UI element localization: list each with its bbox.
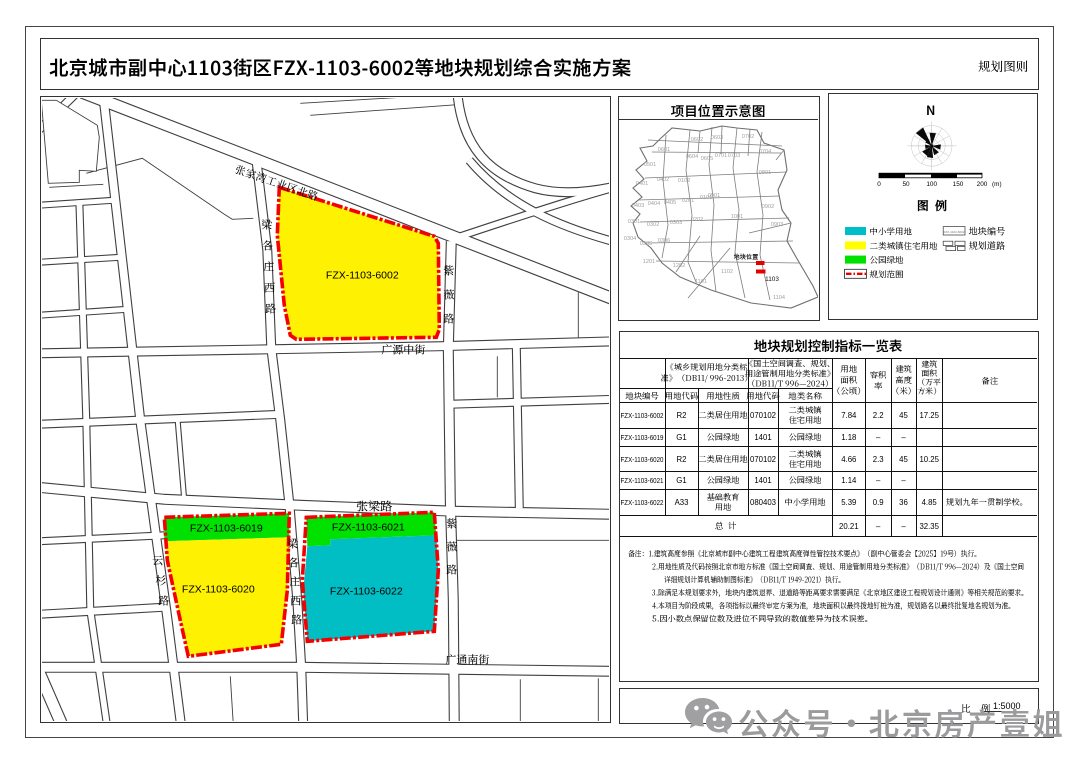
svg-text:率: 率 [874,380,883,392]
svg-text:地块编号: 地块编号 [969,224,1006,238]
svg-text:0801: 0801 [759,170,771,176]
svg-text:FZX-1103-6019: FZX-1103-6019 [621,433,664,442]
svg-text:（DB11/T 996—2024）: （DB11/T 996—2024） [747,379,833,390]
svg-text:路: 路 [446,561,457,577]
svg-text:FZX-1103-6021: FZX-1103-6021 [621,476,664,485]
svg-text:二类居住用地: 二类居住用地 [698,454,747,465]
svg-text:150: 150 [953,181,964,188]
svg-text:FZX-1103-6020: FZX-1103-6020 [182,583,255,595]
svg-text:100: 100 [926,181,937,188]
svg-text:0302: 0302 [647,222,659,228]
svg-text:路: 路 [158,592,169,608]
svg-text:0702: 0702 [742,134,754,140]
svg-text:0: 0 [877,181,881,188]
svg-text:2.2: 2.2 [873,411,884,420]
svg-text:FZX-1103-6002: FZX-1103-6002 [944,230,965,234]
svg-text:庄: 庄 [289,573,300,589]
svg-text:0501: 0501 [644,162,656,168]
svg-text:薇: 薇 [443,286,454,302]
svg-text:R2: R2 [677,411,687,420]
svg-text:0.9: 0.9 [873,498,884,507]
svg-text:用地代码: 用地代码 [746,390,780,402]
svg-text:–: – [876,476,881,485]
svg-text:0404: 0404 [648,201,660,207]
svg-text:20.21: 20.21 [839,522,859,531]
svg-text:5.因小数点保留位数及进位不同导致的数值差异为技术误差。: 5.因小数点保留位数及进位不同导致的数值差异为技术误差。 [652,614,873,625]
svg-text:公园绿地: 公园绿地 [707,432,740,443]
svg-text:公园绿地: 公园绿地 [789,432,822,443]
svg-text:梁: 梁 [287,535,298,551]
svg-text:0903: 0903 [771,222,783,228]
svg-text:2.3: 2.3 [873,455,884,464]
svg-text:公园绿地: 公园绿地 [789,475,822,486]
svg-text:FZX-1103-6019: FZX-1103-6019 [190,522,263,534]
svg-text:3.除满足本规划要求外，地块内建筑退界、退道路等距离要求需要: 3.除满足本规划要求外，地块内建筑退界、退道路等距离要求需要满足《北京地区建设工… [652,588,1028,599]
svg-text:张梁路: 张梁路 [356,497,392,514]
svg-text:0902: 0902 [762,204,774,210]
svg-text:地块位置: 地块位置 [734,252,759,261]
svg-text:0301: 0301 [628,219,640,225]
svg-text:（米）: （米） [891,385,916,397]
svg-text:–: – [876,433,881,442]
svg-text:（公顷）: （公顷） [832,385,866,397]
svg-text:紫: 紫 [446,515,457,531]
svg-text:西: 西 [290,592,301,608]
svg-text:36: 36 [899,498,908,507]
svg-text:R2: R2 [677,455,687,464]
svg-text:45: 45 [899,411,908,420]
svg-text:1104: 1104 [773,295,785,301]
svg-text:0403: 0403 [632,203,644,209]
svg-text:梁: 梁 [261,216,272,232]
svg-text:路: 路 [265,300,276,316]
svg-text:路: 路 [291,611,302,627]
svg-text:–: – [901,522,906,531]
svg-text:0401: 0401 [636,181,648,187]
svg-text:用地代码: 用地代码 [665,390,699,402]
svg-text:公园绿地: 公园绿地 [870,254,905,266]
svg-text:0306: 0306 [658,238,670,244]
svg-text:1.14: 1.14 [841,476,857,485]
svg-text:中小学用地: 中小学用地 [870,226,913,238]
svg-text:地块规划控制指标一览表: 地块规划控制指标一览表 [754,335,903,355]
svg-text:总 计: 总 计 [715,520,737,532]
svg-text:0201: 0201 [682,198,694,204]
svg-text:45: 45 [899,455,908,464]
svg-text:各: 各 [288,554,300,570]
svg-text:住宅用地: 住宅用地 [789,415,822,426]
svg-text:FZX-1103-6021: FZX-1103-6021 [332,521,405,533]
svg-text:0704: 0704 [759,149,771,155]
svg-text:17.25: 17.25 [919,411,939,420]
svg-text:规划范围: 规划范围 [869,268,905,280]
svg-text:G1: G1 [676,476,686,485]
svg-text:广源中街: 广源中街 [381,341,426,357]
svg-text:FZX-1103-6020: FZX-1103-6020 [621,455,664,464]
svg-text:地类名称: 地类名称 [788,390,822,402]
svg-text:地块编号: 地块编号 [625,390,659,402]
svg-text:准》（DB11/ 996-2013）: 准》（DB11/ 996-2013） [661,373,753,384]
svg-text:50: 50 [902,181,910,188]
svg-text:1201: 1201 [643,259,655,265]
svg-text:0202: 0202 [691,217,703,223]
svg-text:中小学用地: 中小学用地 [785,497,826,508]
svg-text:10.25: 10.25 [919,455,939,464]
svg-text:4.本项目为阶段成果，各项指标以最终审定方案为准，地块面积以: 4.本项目为阶段成果，各项指标以最终审定方案为准，地块面积以最终拨地钉桩为准，规… [652,601,1015,612]
svg-text:–: – [901,433,906,442]
svg-text:080403: 080403 [750,498,776,507]
svg-text:薇: 薇 [446,538,457,554]
svg-text:FZX-1103-6002: FZX-1103-6002 [621,411,664,420]
svg-text:32.35: 32.35 [919,522,939,531]
svg-text:备注：1.建筑高度参照《北京城市副中心建筑工程建筑高度弹性管: 备注：1.建筑高度参照《北京城市副中心建筑工程建筑高度弹性管控技术要点》（副中心… [628,549,981,560]
svg-text:图 例: 图 例 [917,197,947,214]
svg-text:0605: 0605 [701,156,713,162]
svg-text:0303: 0303 [670,220,682,226]
svg-text:1103: 1103 [765,276,779,283]
svg-text:070102: 070102 [750,455,776,464]
svg-text:1202: 1202 [673,263,685,269]
svg-text:070102: 070102 [750,411,776,420]
svg-text:0603: 0603 [711,135,723,141]
svg-text:杉: 杉 [155,572,166,588]
svg-text:FZX-1103-6022: FZX-1103-6022 [330,585,403,597]
svg-text:公园绿地: 公园绿地 [707,475,740,486]
svg-text:1401: 1401 [754,476,771,485]
svg-text:0602: 0602 [691,137,703,143]
svg-text:1102: 1102 [721,269,733,275]
svg-text:0703: 0703 [728,153,740,159]
svg-text:备注: 备注 [981,375,998,387]
svg-text:西: 西 [264,279,275,295]
svg-text:规划九年一贯制学校。: 规划九年一贯制学校。 [945,497,1028,508]
svg-text:0304: 0304 [624,236,636,242]
svg-text:200: 200 [977,181,988,188]
svg-text:4.66: 4.66 [841,455,856,464]
svg-text:1001: 1001 [731,214,743,220]
svg-text:《城乡规划用地分类标: 《城乡规划用地分类标 [666,362,748,373]
svg-text:4.85: 4.85 [922,498,938,507]
svg-text:G1: G1 [676,433,686,442]
svg-text:0101: 0101 [700,195,712,201]
svg-text:详细规划计算机辅助制图标准》（DB11/T 1949-202: 详细规划计算机辅助制图标准》（DB11/T 1949-2021）执行。 [664,575,845,586]
svg-text:1.18: 1.18 [841,433,856,442]
svg-text:0701: 0701 [715,153,727,159]
svg-text:7.84: 7.84 [841,411,857,420]
svg-text:用地: 用地 [715,502,731,513]
svg-text:–: – [876,522,881,531]
svg-text:FZX-1103-6002: FZX-1103-6002 [326,269,399,281]
svg-text:庄: 庄 [263,258,274,274]
svg-text:规划道路: 规划道路 [969,238,1007,252]
svg-text:0405: 0405 [664,200,676,206]
svg-text:二类城镇住宅用地: 二类城镇住宅用地 [870,240,939,252]
svg-text:各: 各 [262,237,274,253]
svg-text:2.用地性质及代码按照北京市地方标准《国土空间调查、规划、用: 2.用地性质及代码按照北京市地方标准《国土空间调查、规划、用途管制用地分类标准》… [652,562,1024,573]
svg-text:0604: 0604 [686,154,698,160]
svg-text:方米）: 方米） [917,386,941,397]
svg-text:云: 云 [152,552,163,568]
svg-text:1401: 1401 [754,433,771,442]
svg-text:A33: A33 [675,498,689,507]
svg-text:0102: 0102 [678,178,690,184]
svg-text:紫: 紫 [443,262,454,278]
svg-text:住宅用地: 住宅用地 [789,459,822,470]
svg-text:N: N [926,100,936,119]
svg-text:广通南街: 广通南街 [445,651,490,667]
svg-text:(m): (m) [992,181,1002,188]
svg-text:路: 路 [443,310,454,326]
svg-text:0601: 0601 [658,147,670,153]
svg-text:用地性质: 用地性质 [706,390,740,402]
svg-text:5.39: 5.39 [841,498,856,507]
svg-text:0402: 0402 [657,177,669,183]
svg-text:1101: 1101 [695,279,707,285]
svg-text:–: – [901,476,906,485]
svg-text:FZX-1103-6022: FZX-1103-6022 [621,498,664,507]
svg-text:二类居住用地: 二类居住用地 [698,410,747,421]
svg-text:0305: 0305 [640,241,652,247]
